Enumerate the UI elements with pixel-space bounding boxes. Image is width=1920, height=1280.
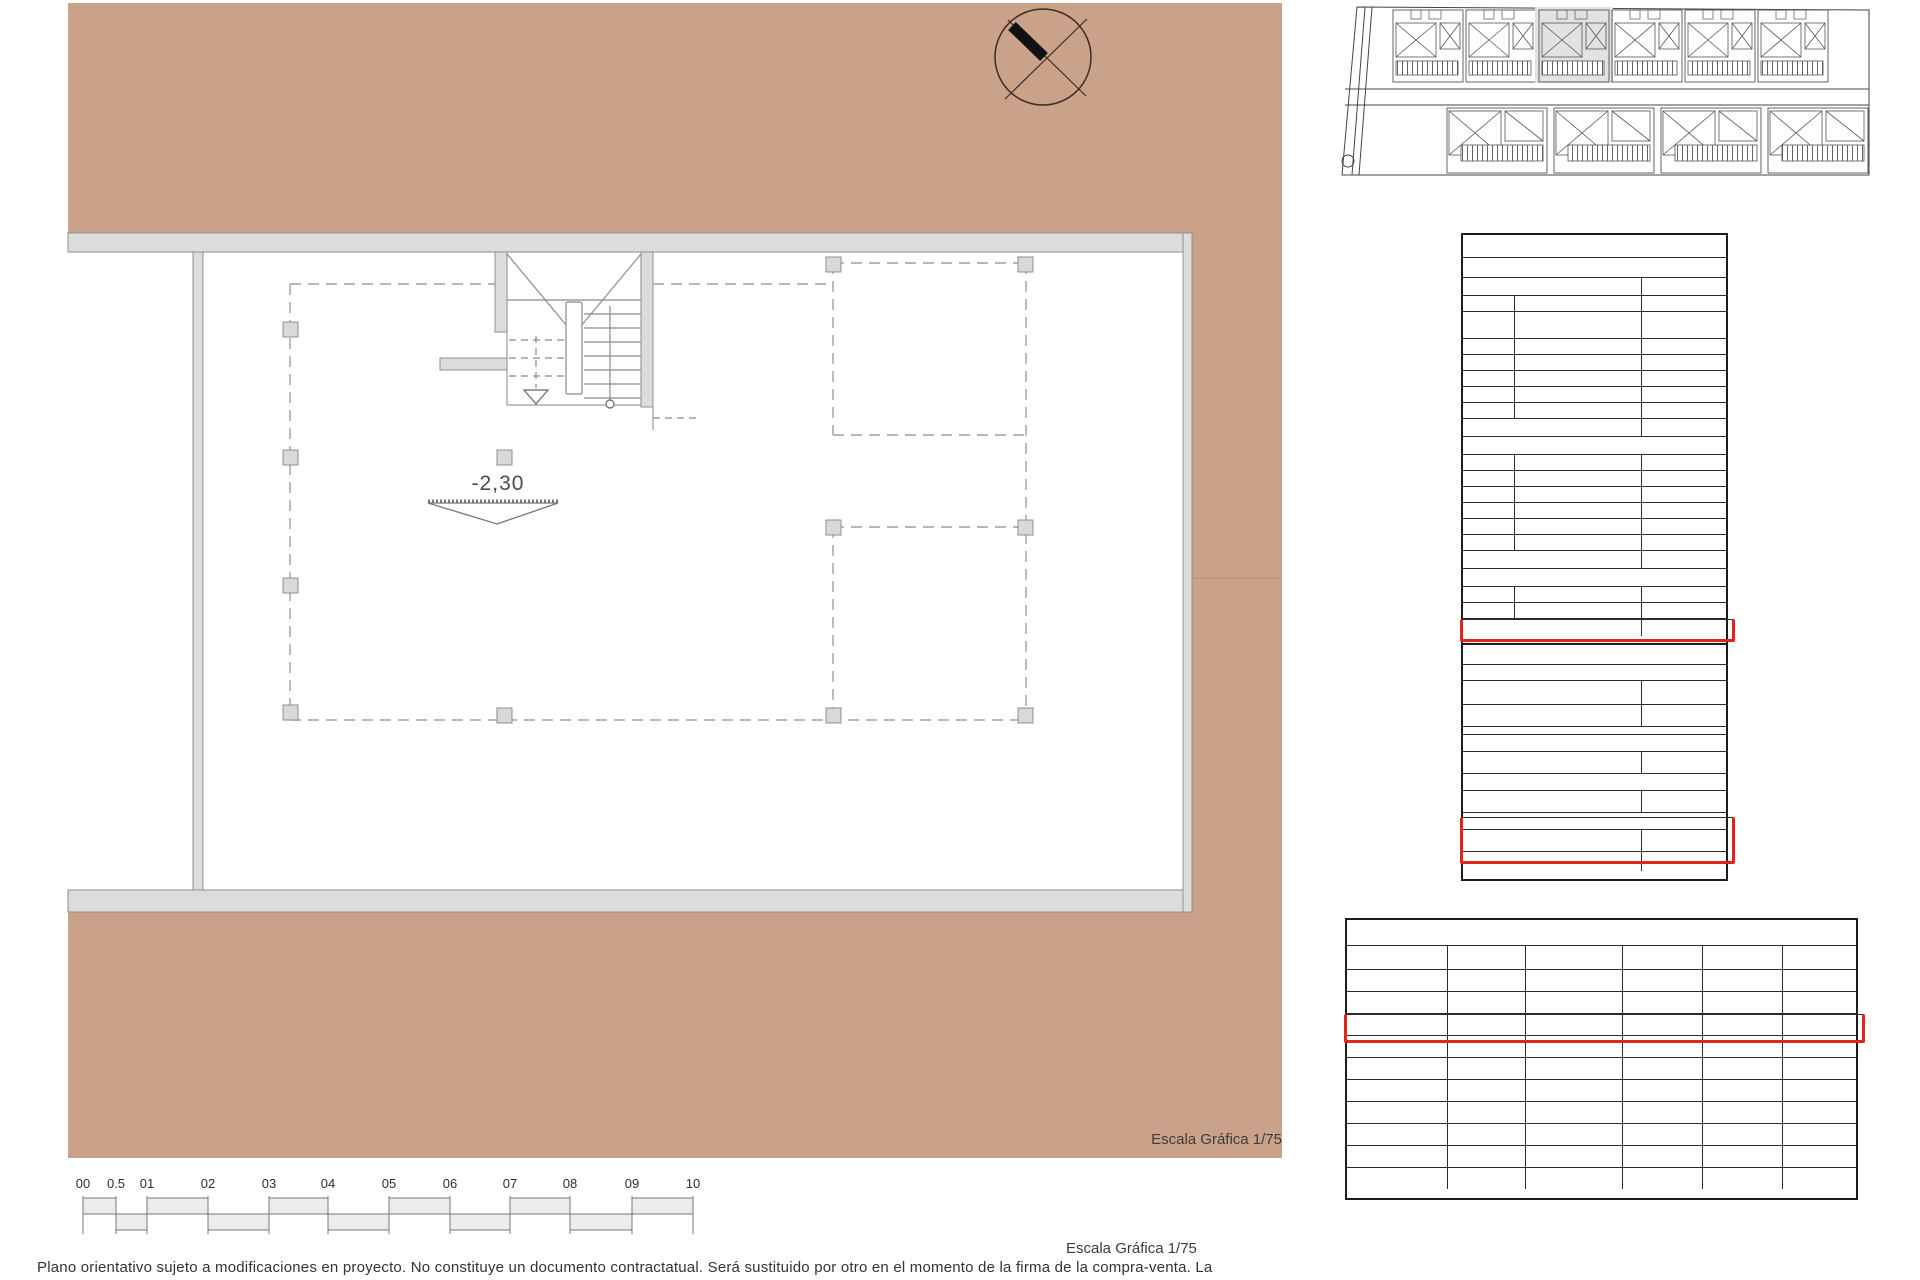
- vivienda-label: [1347, 1102, 1447, 1123]
- area-value: [1447, 1014, 1525, 1035]
- area-value: [1525, 1036, 1622, 1057]
- table-row: [1463, 418, 1726, 436]
- scale-label: 0.5: [107, 1176, 125, 1191]
- area-value: [1525, 1014, 1622, 1035]
- area-value: [1702, 1058, 1782, 1079]
- table-row: [1347, 1145, 1856, 1167]
- area-value: [1641, 312, 1726, 338]
- total-value: [1641, 419, 1726, 436]
- scale-label: 09: [625, 1176, 639, 1191]
- vivienda-label: [1347, 1080, 1447, 1101]
- area-value: [1447, 1036, 1525, 1057]
- area-value: [1622, 1168, 1702, 1189]
- area-value: [1447, 1080, 1525, 1101]
- area-value: [1641, 487, 1726, 502]
- area-value: [1641, 471, 1726, 486]
- room-label: [1515, 355, 1641, 370]
- area-value: [1782, 1102, 1860, 1123]
- area-value: [1782, 992, 1860, 1013]
- table-row: [1463, 618, 1726, 636]
- column-header: [1782, 946, 1860, 969]
- area-value: [1782, 1146, 1860, 1167]
- table-header-row: [1347, 945, 1856, 969]
- area-value: [1782, 1124, 1860, 1145]
- area-value: [1622, 1036, 1702, 1057]
- vivienda-label: [1347, 1146, 1447, 1167]
- site-house-unit: [1768, 108, 1868, 173]
- graphic-scale-bar: [83, 1196, 693, 1234]
- room-number: [1463, 339, 1515, 354]
- vivienda-label: [1347, 1014, 1447, 1035]
- room-number: [1463, 387, 1515, 402]
- table-row: [1463, 454, 1726, 470]
- site-house-unit: [1661, 108, 1761, 173]
- room-number: [1463, 403, 1515, 418]
- room-label: [1515, 403, 1641, 418]
- table-row: [1347, 1035, 1856, 1057]
- area-value: [1782, 1036, 1860, 1057]
- architectural-plan-sheet: -2,30 Escala Gráfica 1/75 000.5010203040…: [0, 0, 1920, 1280]
- area-value: [1447, 1168, 1525, 1189]
- table-row: [1463, 470, 1726, 486]
- table-row: [1463, 829, 1726, 851]
- total-label: [1463, 619, 1641, 636]
- area-value: [1641, 705, 1726, 726]
- table-row: [1463, 338, 1726, 354]
- area-value: [1447, 1058, 1525, 1079]
- table-row: [1463, 851, 1726, 871]
- scale-label: 00: [76, 1176, 90, 1191]
- room-label: [1515, 387, 1641, 402]
- area-value: [1641, 535, 1726, 550]
- row-label: [1463, 752, 1641, 773]
- area-value: [1641, 371, 1726, 386]
- scale-label: 05: [382, 1176, 396, 1191]
- total-label: [1463, 551, 1641, 568]
- section-label: [1463, 569, 1726, 586]
- area-value: [1702, 1014, 1782, 1035]
- room-number: [1463, 503, 1515, 518]
- table-row: [1347, 1167, 1856, 1189]
- area-value: [1641, 455, 1726, 470]
- area-value: [1622, 1124, 1702, 1145]
- area-value: [1641, 296, 1726, 311]
- room-number: [1463, 471, 1515, 486]
- table-row: [1463, 586, 1726, 602]
- vivienda-label: [1347, 992, 1447, 1013]
- area-value: [1622, 1102, 1702, 1123]
- table-row: [1463, 680, 1726, 704]
- column-header: [1525, 946, 1622, 969]
- room-label: [1515, 296, 1641, 311]
- table-row: [1347, 991, 1856, 1013]
- area-value: [1447, 1124, 1525, 1145]
- room-label: [1515, 519, 1641, 534]
- unit-label: [1641, 681, 1726, 704]
- level-label: -2,30: [428, 472, 568, 496]
- vivienda-label: [1347, 1124, 1447, 1145]
- unit-label: [1641, 278, 1726, 295]
- scale-label: 01: [140, 1176, 154, 1191]
- area-value: [1525, 970, 1622, 991]
- section-label: [1463, 278, 1641, 295]
- table-row: [1463, 402, 1726, 418]
- area-value: [1525, 992, 1622, 1013]
- site-house-unit: [1393, 10, 1463, 82]
- handrail-post: [606, 400, 614, 408]
- area-value: [1525, 1080, 1622, 1101]
- room-number: [1463, 487, 1515, 502]
- area-value: [1622, 1080, 1702, 1101]
- area-value: [1641, 752, 1726, 773]
- vivienda-label: [1347, 1036, 1447, 1057]
- table-row: [1347, 1057, 1856, 1079]
- area-value: [1525, 1124, 1622, 1145]
- area-value: [1525, 1146, 1622, 1167]
- room-number: [1463, 535, 1515, 550]
- column-header: [1702, 946, 1782, 969]
- column-header: [1447, 946, 1525, 969]
- table-row: [1463, 602, 1726, 618]
- area-value: [1641, 603, 1726, 618]
- table-row: [1463, 386, 1726, 402]
- plan-scale-caption: Escala Gráfica 1/75: [1040, 1131, 1282, 1148]
- room-number: [1463, 455, 1515, 470]
- area-value: [1782, 1168, 1860, 1189]
- table-row: [1463, 734, 1726, 751]
- table-row: [1463, 518, 1726, 534]
- column-header: [1622, 946, 1702, 969]
- scale-label: 02: [201, 1176, 215, 1191]
- footer-disclaimer: Plano orientativo sujeto a modificacione…: [37, 1259, 1212, 1276]
- footer-scale-caption: Escala Gráfica 1/75: [1066, 1240, 1197, 1257]
- site-house-unit: [1685, 10, 1755, 82]
- area-value: [1525, 1168, 1622, 1189]
- area-value: [1622, 970, 1702, 991]
- superficie-construida-table: [1461, 643, 1728, 881]
- table-row: [1463, 726, 1726, 734]
- area-value: [1622, 992, 1702, 1013]
- area-value: [1641, 830, 1726, 851]
- area-value: [1641, 339, 1726, 354]
- area-value: [1702, 1168, 1782, 1189]
- site-house-unit: [1554, 108, 1654, 173]
- table-row: [1463, 486, 1726, 502]
- area-value: [1447, 970, 1525, 991]
- row-label: [1463, 705, 1641, 726]
- room-label: [1515, 471, 1641, 486]
- table-row: [1463, 751, 1726, 773]
- superficie-util-table: [1461, 233, 1728, 657]
- area-value: [1702, 1036, 1782, 1057]
- table-row: [1463, 370, 1726, 386]
- area-value: [1447, 992, 1525, 1013]
- plan-interior: [0, 252, 1183, 890]
- room-label: [1515, 487, 1641, 502]
- scale-label: 10: [686, 1176, 700, 1191]
- table-row: [1463, 436, 1726, 454]
- total-value: [1641, 852, 1726, 871]
- area-value: [1782, 1058, 1860, 1079]
- vivienda-label: [1347, 1168, 1447, 1189]
- total-value: [1641, 619, 1726, 636]
- site-house-unit: [1535, 7, 1613, 83]
- room-number: [1463, 355, 1515, 370]
- site-house-unit: [1466, 10, 1536, 82]
- area-value: [1525, 1102, 1622, 1123]
- area-value: [1447, 1146, 1525, 1167]
- table-row: [1463, 311, 1726, 338]
- table-row: [1463, 812, 1726, 829]
- area-value: [1782, 1014, 1860, 1035]
- room-number: [1463, 519, 1515, 534]
- area-value: [1782, 970, 1860, 991]
- room-label: [1515, 371, 1641, 386]
- area-value: [1641, 791, 1726, 812]
- superficies-utiles-summary-table: [1345, 918, 1858, 1200]
- room-label: [1515, 339, 1641, 354]
- area-value: [1702, 992, 1782, 1013]
- section-label: [1463, 437, 1726, 454]
- table-row: [1463, 790, 1726, 812]
- area-value: [1641, 403, 1726, 418]
- total-value: [1641, 551, 1726, 568]
- column-header: [1347, 946, 1447, 969]
- site-house-unit: [1612, 10, 1682, 82]
- section-label: [1463, 681, 1641, 704]
- area-value: [1702, 1080, 1782, 1101]
- area-value: [1641, 355, 1726, 370]
- room-label: [1515, 503, 1641, 518]
- table-row: [1463, 295, 1726, 311]
- area-value: [1622, 1014, 1702, 1035]
- room-label: [1515, 535, 1641, 550]
- row-label: [1463, 830, 1641, 851]
- table-row: [1463, 550, 1726, 568]
- room-label: [1515, 455, 1641, 470]
- area-value: [1622, 1146, 1702, 1167]
- scale-label: 06: [443, 1176, 457, 1191]
- table-row: [1463, 773, 1726, 790]
- room-number: [1463, 603, 1515, 618]
- site-house-unit: [1758, 10, 1828, 82]
- room-number: [1463, 312, 1515, 338]
- room-label: [1515, 587, 1641, 602]
- area-value: [1641, 387, 1726, 402]
- site-plan-thumbnail: [1335, 5, 1875, 178]
- area-value: [1447, 1102, 1525, 1123]
- section-label: [1463, 735, 1726, 751]
- area-value: [1641, 519, 1726, 534]
- row-label: [1463, 791, 1641, 812]
- table-row: [1347, 1013, 1856, 1035]
- section-label: [1463, 774, 1726, 790]
- area-value: [1525, 1058, 1622, 1079]
- scale-label: 03: [262, 1176, 276, 1191]
- room-number: [1463, 371, 1515, 386]
- total-label: [1463, 419, 1641, 436]
- room-number: [1463, 587, 1515, 602]
- table-row: [1463, 704, 1726, 726]
- scale-label: 07: [503, 1176, 517, 1191]
- table-row: [1463, 277, 1726, 295]
- table-row: [1347, 1101, 1856, 1123]
- table-row: [1347, 1123, 1856, 1145]
- table-row: [1463, 502, 1726, 518]
- area-value: [1702, 1102, 1782, 1123]
- area-value: [1702, 1124, 1782, 1145]
- vivienda-label: [1347, 970, 1447, 991]
- area-value: [1622, 1058, 1702, 1079]
- total-label: [1463, 852, 1641, 871]
- scale-label: 08: [563, 1176, 577, 1191]
- area-value: [1702, 1146, 1782, 1167]
- table-row: [1347, 969, 1856, 991]
- table-row: [1463, 568, 1726, 586]
- table-row: [1463, 534, 1726, 550]
- area-value: [1702, 970, 1782, 991]
- room-label: [1515, 603, 1641, 618]
- table-row: [1347, 1079, 1856, 1101]
- vivienda-label: [1347, 1058, 1447, 1079]
- room-label: [1515, 312, 1641, 338]
- room-number: [1463, 296, 1515, 311]
- site-house-unit: [1447, 108, 1547, 173]
- area-value: [1641, 587, 1726, 602]
- scale-label: 04: [321, 1176, 335, 1191]
- area-value: [1782, 1080, 1860, 1101]
- area-value: [1641, 503, 1726, 518]
- section-label: [1463, 813, 1726, 829]
- table-row: [1463, 354, 1726, 370]
